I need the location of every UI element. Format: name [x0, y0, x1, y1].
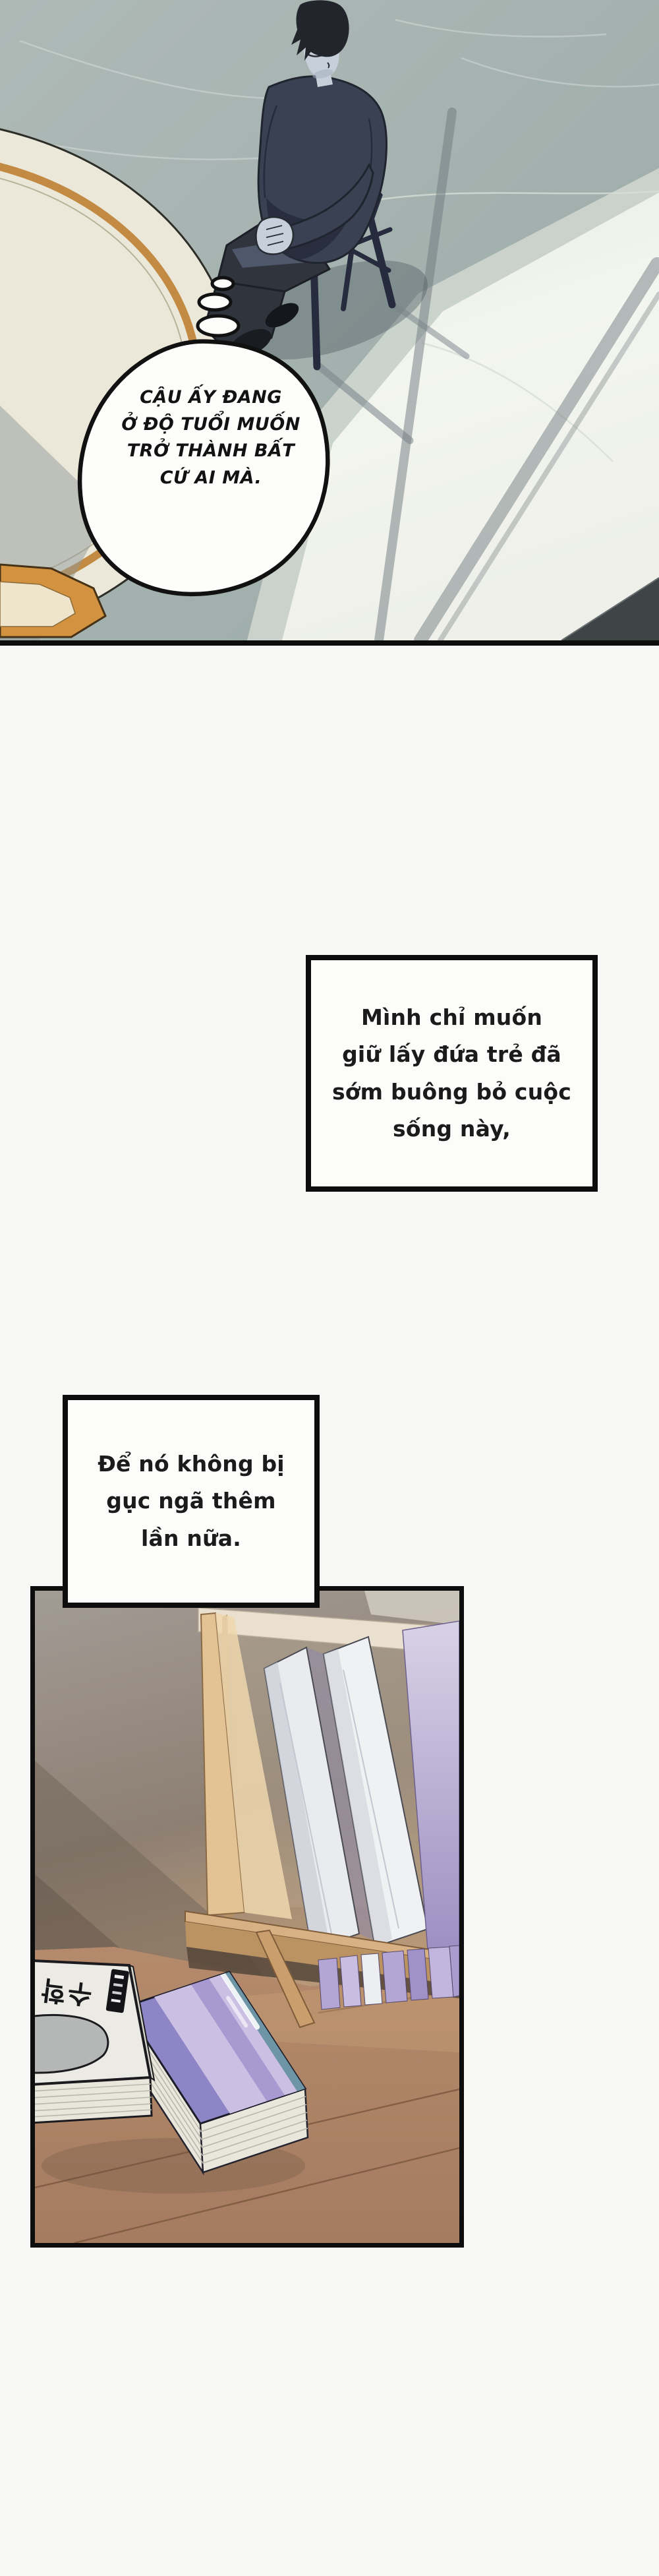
caption-text-1: Mình chỉ muốn giữ lấy đứa trẻ đã sớm buô…	[332, 999, 571, 1147]
caption-text-2: Để nó không bị gục ngã thêm lần nữa.	[98, 1446, 285, 1556]
bubble-trail-dot-1	[212, 278, 233, 290]
scene-artwork	[0, 0, 659, 640]
panel-scene-man-on-stool: CẬU ẤY ĐANG Ở ĐỘ TUỔI MUỐN TRỞ THÀNH BẤT…	[0, 0, 659, 646]
caption-box-2: Để nó không bị gục ngã thêm lần nữa.	[63, 1395, 320, 1608]
bookshelf-artwork: 수학	[35, 1591, 459, 2243]
caption-box-1: Mình chỉ muốn giữ lấy đứa trẻ đã sớm buô…	[306, 955, 598, 1192]
comic-page: CẬU ẤY ĐANG Ở ĐỘ TUỔI MUỐN TRỞ THÀNH BẤT…	[0, 0, 659, 2576]
bubble-trail-dot-2	[199, 294, 231, 310]
white-floor-book: 수학	[35, 1960, 154, 2124]
thought-bubble-text: CẬU ẤY ĐANG Ở ĐỘ TUỔI MUỐN TRỞ THÀNH BẤT…	[107, 384, 314, 491]
panel-scene-bookshelf-floor: 수학	[30, 1586, 464, 2248]
white-book-title: 수학	[38, 1973, 94, 2009]
bubble-trail-dot-3	[198, 316, 239, 336]
